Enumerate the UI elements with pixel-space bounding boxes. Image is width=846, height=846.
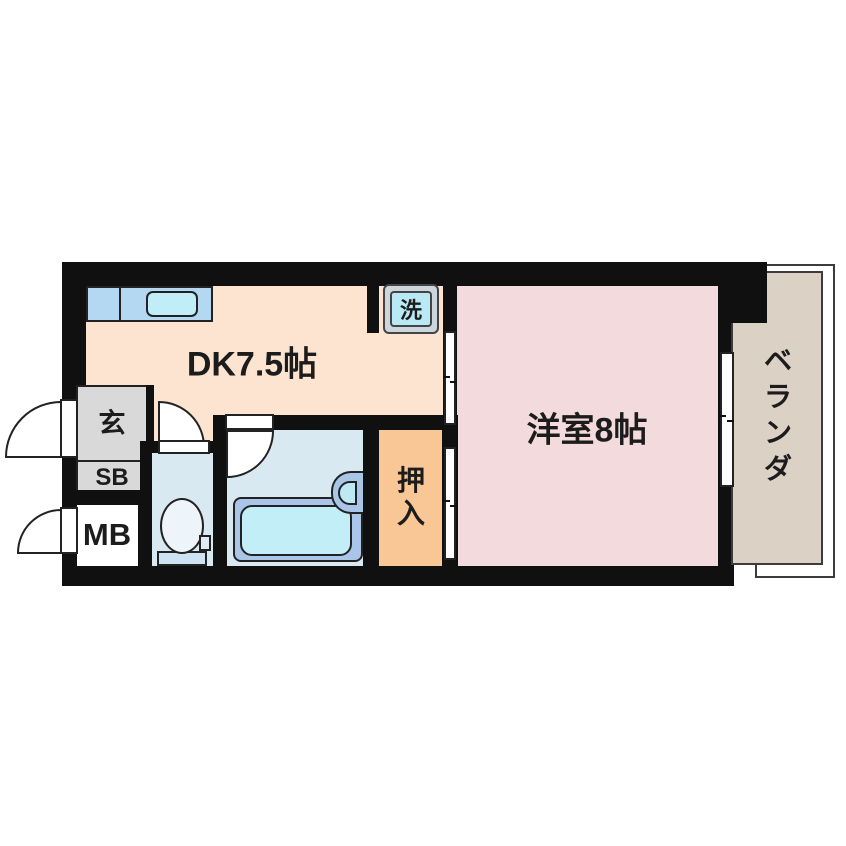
entrance-shoebox-divider [77, 460, 147, 462]
kitchen-sink [146, 291, 198, 317]
washing-machine-pan-inner: 洗 [390, 291, 432, 327]
sliding-door-dk-western [444, 331, 456, 425]
meter-box-label: MB [83, 517, 131, 553]
slider-tick [443, 500, 450, 502]
veranda-label: ベランダ [761, 343, 795, 487]
window-tick [719, 415, 726, 417]
slider-tick [450, 381, 457, 383]
western-room-label: 洋室8帖 [527, 403, 648, 452]
entrance-door-arc [6, 402, 61, 457]
slider-tick [450, 505, 457, 507]
washer-nook-wall [367, 262, 379, 333]
window-tick [727, 420, 734, 422]
meter-box-door-leaf [60, 507, 78, 554]
meter-box-door-arc [18, 510, 61, 553]
toilet-door-leaf [158, 440, 210, 454]
slider-tick [443, 376, 450, 378]
sliding-door-closet [444, 447, 456, 560]
toilet-flush-handle [199, 535, 211, 551]
toilet-bowl [160, 498, 204, 554]
wash-basin-bowl [338, 481, 357, 505]
washing-machine-pan: 洗 [383, 284, 439, 334]
floor-plan: 洗 DK7.5帖 洋室8帖 玄 SB MB 押入 ベラ [0, 0, 846, 846]
corner-wall-block [716, 262, 767, 323]
entrance-door-leaf [60, 399, 78, 458]
washer-label: 洗 [400, 293, 422, 325]
entrance-label: 玄 [99, 402, 126, 441]
dk-room-label: DK7.5帖 [187, 337, 317, 386]
bathroom-door-leaf [225, 414, 274, 430]
bathtub-inner [240, 505, 352, 556]
closet-label: 押入 [396, 464, 426, 530]
kitchen-counter-divider [119, 287, 121, 321]
shoe-box-label: SB [95, 464, 128, 492]
